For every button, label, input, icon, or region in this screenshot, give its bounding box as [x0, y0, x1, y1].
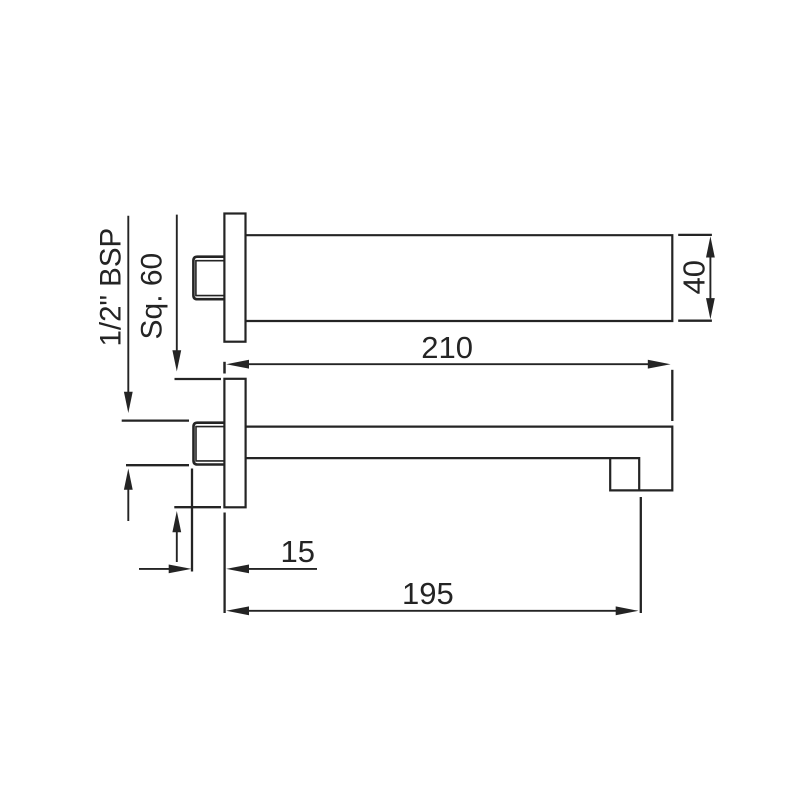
svg-text:195: 195 — [402, 576, 454, 611]
svg-text:40: 40 — [677, 260, 712, 294]
svg-text:15: 15 — [281, 534, 315, 569]
svg-text:Sq. 60: Sq. 60 — [136, 253, 169, 340]
svg-text:210: 210 — [421, 330, 473, 365]
svg-text:1/2" BSP: 1/2" BSP — [94, 228, 127, 347]
